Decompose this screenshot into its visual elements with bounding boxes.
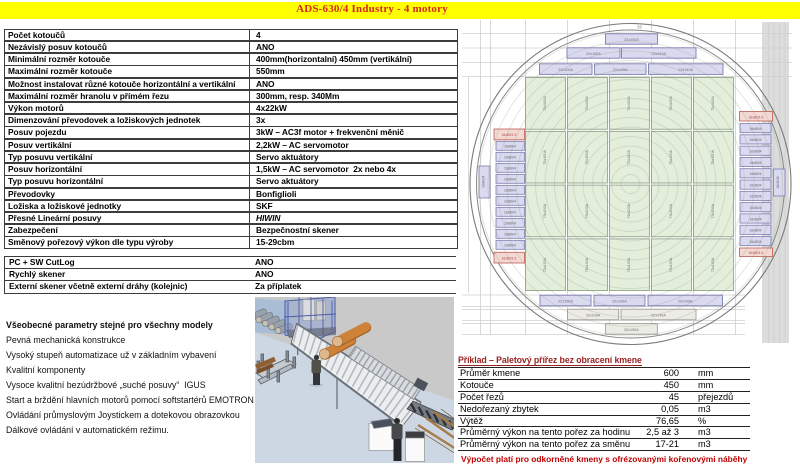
svg-text:75x100A: 75x100A [543, 203, 547, 218]
svg-text:75x100A: 75x100A [627, 96, 631, 111]
svg-text:75x100A: 75x100A [543, 150, 547, 165]
svg-text:75x100A: 75x100A [627, 257, 631, 272]
svg-text:16x80/4: 16x80/4 [504, 211, 516, 215]
svg-text:22x100A: 22x100A [624, 328, 639, 332]
svg-text:22x100A: 22x100A [558, 68, 573, 72]
svg-text:16x60/4: 16x60/4 [776, 176, 780, 188]
svg-text:16x80/4: 16x80/4 [749, 240, 761, 244]
svg-text:16x80/4: 16x80/4 [504, 244, 516, 248]
svg-text:16x80/1 6: 16x80/1 6 [502, 133, 517, 137]
svg-text:22x100A: 22x100A [624, 38, 639, 42]
svg-text:75x100A: 75x100A [585, 203, 589, 218]
svg-text:16x80/4: 16x80/4 [504, 167, 516, 171]
svg-text:75x100A: 75x100A [585, 96, 589, 111]
svg-text:16x60/4: 16x60/4 [482, 176, 486, 188]
svg-text:16x80/4: 16x80/4 [749, 161, 761, 165]
svg-text:75x100A: 75x100A [543, 257, 547, 272]
svg-text:16x80/1 6: 16x80/1 6 [749, 251, 764, 255]
svg-text:16x80/4: 16x80/4 [749, 138, 761, 142]
svg-text:16x80/4: 16x80/4 [749, 172, 761, 176]
svg-text:75x100A: 75x100A [669, 203, 673, 218]
svg-text:75x100A: 75x100A [711, 203, 715, 218]
svg-text:22x140A: 22x140A [651, 314, 666, 318]
svg-text:75x100A: 75x100A [627, 203, 631, 218]
svg-text:22x100A: 22x100A [612, 300, 627, 304]
svg-text:75x100A: 75x100A [711, 150, 715, 165]
svg-text:75x100A: 75x100A [627, 150, 631, 165]
svg-text:16x80/4: 16x80/4 [749, 217, 761, 221]
svg-text:75x100A: 75x100A [711, 96, 715, 111]
svg-text:16x80/4: 16x80/4 [504, 222, 516, 226]
svg-text:16x80/4: 16x80/4 [749, 150, 761, 154]
svg-text:16x80/4: 16x80/4 [504, 189, 516, 193]
svg-text:22x140A: 22x140A [678, 68, 693, 72]
svg-text:75x100A: 75x100A [543, 96, 547, 111]
svg-text:22x100A: 22x100A [586, 314, 601, 318]
svg-text:16x80/4: 16x80/4 [504, 200, 516, 204]
svg-text:16x80/4: 16x80/4 [749, 195, 761, 199]
svg-text:36: 36 [637, 25, 643, 30]
svg-text:75x100A: 75x100A [711, 257, 715, 272]
svg-text:22x100A: 22x100A [586, 52, 601, 56]
svg-text:16x80/4: 16x80/4 [504, 233, 516, 237]
svg-text:16x80/1 6: 16x80/1 6 [749, 115, 764, 119]
svg-text:75x100A: 75x100A [669, 150, 673, 165]
svg-text:22x140A: 22x140A [678, 300, 693, 304]
svg-text:16x80/4: 16x80/4 [749, 127, 761, 131]
svg-text:22x100A: 22x100A [613, 68, 628, 72]
svg-text:75x100A: 75x100A [669, 96, 673, 111]
svg-text:16x80/1 6: 16x80/1 6 [502, 257, 517, 261]
svg-text:75x100A: 75x100A [669, 257, 673, 272]
svg-text:16x80/4: 16x80/4 [749, 206, 761, 210]
svg-text:16x80/4: 16x80/4 [504, 178, 516, 182]
svg-text:16x80/4: 16x80/4 [504, 145, 516, 149]
svg-text:22x140A: 22x140A [651, 52, 666, 56]
svg-text:16x80/4: 16x80/4 [749, 183, 761, 187]
svg-text:75x100A: 75x100A [585, 257, 589, 272]
svg-text:75x100A: 75x100A [585, 150, 589, 165]
svg-text:16x80/4: 16x80/4 [504, 156, 516, 160]
svg-text:16x80/4: 16x80/4 [749, 229, 761, 233]
svg-text:22x100A: 22x100A [558, 300, 573, 304]
